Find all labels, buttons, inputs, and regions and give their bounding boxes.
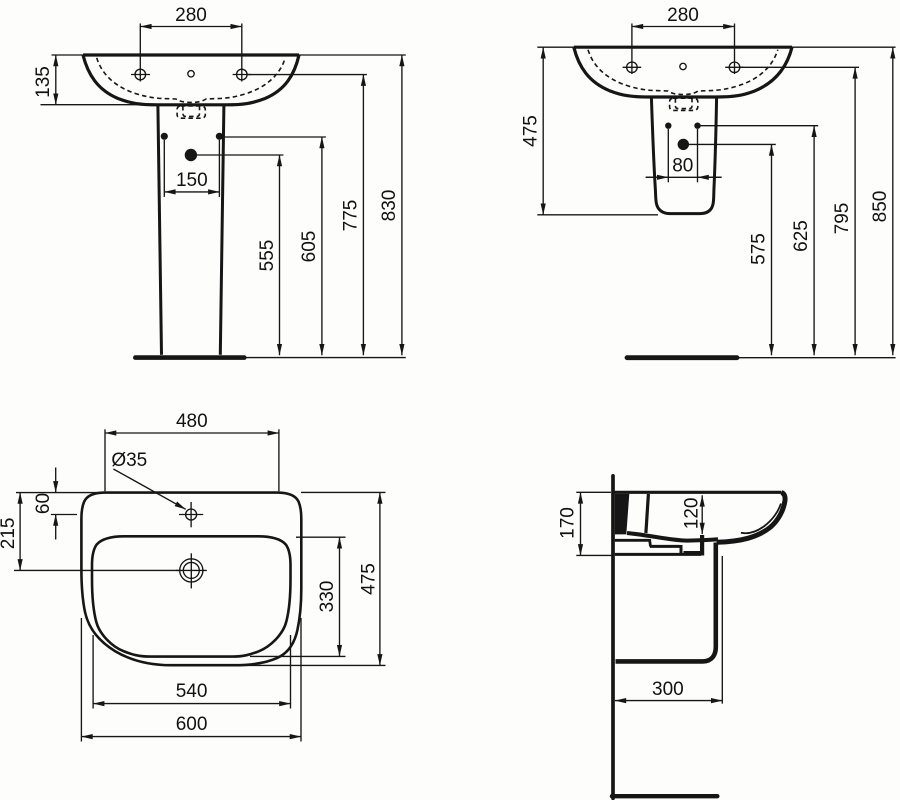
svg-text:575: 575 [749, 233, 770, 265]
svg-text:555: 555 [257, 240, 278, 272]
svg-text:330: 330 [317, 581, 338, 613]
svg-text:830: 830 [379, 190, 400, 222]
svg-text:475: 475 [520, 115, 541, 147]
svg-text:475: 475 [359, 563, 380, 595]
svg-text:625: 625 [791, 220, 812, 252]
svg-text:170: 170 [558, 507, 579, 539]
svg-text:280: 280 [175, 5, 207, 26]
svg-text:80: 80 [672, 156, 693, 177]
svg-text:300: 300 [652, 679, 684, 700]
svg-text:540: 540 [176, 681, 208, 702]
svg-text:795: 795 [832, 203, 853, 235]
svg-text:850: 850 [870, 191, 891, 223]
svg-text:480: 480 [176, 411, 208, 432]
svg-text:60: 60 [33, 493, 54, 514]
svg-text:605: 605 [299, 231, 320, 263]
svg-text:120: 120 [681, 498, 702, 530]
svg-text:215: 215 [0, 518, 19, 550]
svg-text:775: 775 [341, 200, 362, 232]
svg-text:135: 135 [33, 66, 54, 98]
svg-text:150: 150 [176, 170, 208, 191]
svg-text:Ø35: Ø35 [111, 450, 147, 471]
svg-text:280: 280 [667, 5, 699, 26]
svg-text:600: 600 [176, 714, 208, 735]
